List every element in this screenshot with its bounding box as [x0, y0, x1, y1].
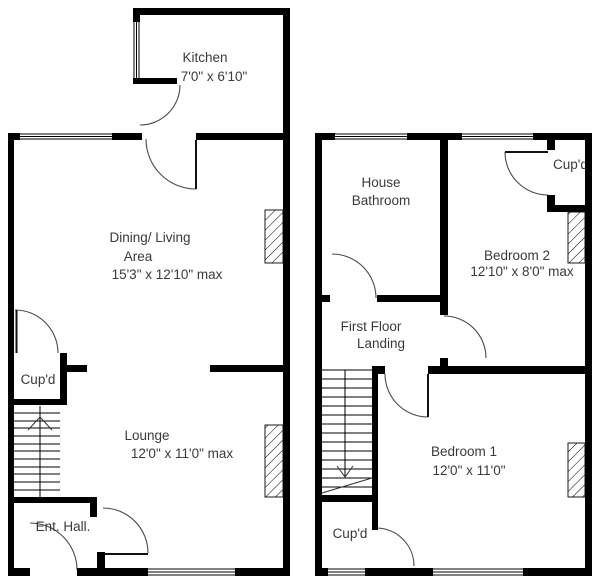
- cupboard-bottom-door-arc: [376, 528, 414, 566]
- floorplan-drawing: Kitchen 7'0" x 6'10" Dining/ Living Area…: [0, 0, 600, 582]
- room-dims-lounge: 12'0" x 11'0" max: [131, 446, 234, 461]
- hall-lounge-door-arc: [103, 508, 148, 553]
- cupboard-door-arc: [15, 310, 58, 353]
- dining-door-arc: [146, 139, 196, 189]
- chimney-hatch-lounge: [265, 425, 283, 497]
- window-lounge: [148, 568, 235, 576]
- room-label-cupboard-ff-top: Cup'd: [553, 157, 588, 172]
- room-label-entrance-hall: Ent. Hall.: [36, 519, 91, 534]
- ground-floor-walls: [8, 8, 290, 576]
- chimney-hatch-dining: [265, 210, 283, 263]
- room-label-cupboard-gf: Cup'd: [21, 372, 56, 387]
- staircase-ground-floor: [14, 406, 60, 497]
- cupboard-top-door-arc: [505, 152, 548, 195]
- room-dims-kitchen: 7'0" x 6'10": [181, 69, 248, 84]
- window-bedroom1: [433, 568, 523, 576]
- room-label-dining-line2: Area: [124, 249, 153, 264]
- stairs-break-line: [322, 478, 372, 493]
- window-bathroom: [335, 133, 407, 140]
- ground-floor-windows: [20, 22, 235, 576]
- kitchen-door-arc: [140, 85, 180, 125]
- room-label-bathroom-line2: Bathroom: [352, 193, 411, 208]
- room-label-dining-line1: Dining/ Living: [109, 230, 190, 245]
- window-bedroom2: [462, 133, 533, 140]
- room-label-bedroom2: Bedroom 2: [484, 248, 550, 263]
- room-label-bedroom1: Bedroom 1: [431, 444, 497, 459]
- chimney-hatch-bedroom1: [568, 443, 585, 497]
- window-cupboard-bottom: [328, 568, 365, 576]
- room-label-bathroom-line1: House: [361, 175, 400, 190]
- room-dims-dining: 15'3" x 12'10" max: [112, 267, 223, 282]
- ground-floor-plan: Kitchen 7'0" x 6'10" Dining/ Living Area…: [8, 8, 290, 576]
- window-kitchen: [133, 22, 140, 78]
- bathroom-door-arc: [332, 254, 376, 298]
- room-dims-bedroom2: 12'10" x 8'0" max: [470, 264, 574, 279]
- room-label-kitchen: Kitchen: [182, 50, 227, 65]
- room-dims-bedroom1: 12'0" x 11'0": [432, 463, 505, 478]
- bedroom1-door-arc: [385, 374, 428, 417]
- first-floor-plan: Cup'd: [315, 133, 592, 576]
- room-label-cupboard-ff-bottom: Cup'd: [333, 526, 368, 541]
- room-label-landing-line2: Landing: [357, 336, 405, 351]
- chimney-hatch-bedroom2: [568, 212, 585, 263]
- bedroom2-door-arc: [444, 316, 486, 358]
- window-dining: [20, 133, 112, 140]
- room-label-landing-line1: First Floor: [341, 319, 402, 334]
- floorplan-page: Kitchen 7'0" x 6'10" Dining/ Living Area…: [0, 0, 600, 582]
- staircase-first-floor: [322, 370, 372, 493]
- room-label-lounge: Lounge: [124, 428, 169, 443]
